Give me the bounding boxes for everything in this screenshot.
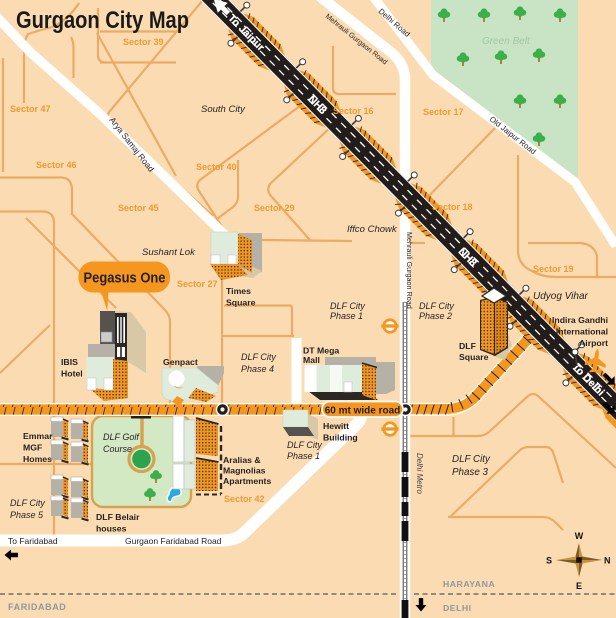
svg-text:Course: Course <box>103 444 132 454</box>
svg-text:E: E <box>576 581 582 591</box>
svg-text:Sector 29: Sector 29 <box>254 203 295 213</box>
svg-text:Genpact: Genpact <box>163 357 198 367</box>
svg-text:DLF City: DLF City <box>287 440 322 450</box>
svg-text:N: N <box>604 556 611 566</box>
svg-text:S: S <box>546 556 552 566</box>
svg-text:Iffco Chowk: Iffco Chowk <box>347 224 398 235</box>
svg-text:Apartments: Apartments <box>223 476 271 486</box>
svg-text:MGF: MGF <box>23 443 42 453</box>
svg-text:Phase 3: Phase 3 <box>452 467 489 478</box>
svg-text:Phase 4: Phase 4 <box>241 364 274 374</box>
svg-text:DELHI: DELHI <box>443 603 472 613</box>
svg-text:Mall: Mall <box>303 355 320 365</box>
svg-text:Sector 47: Sector 47 <box>10 104 51 114</box>
svg-text:Sector 17: Sector 17 <box>423 107 464 117</box>
svg-text:FARIDABAD: FARIDABAD <box>8 602 66 612</box>
svg-text:South City: South City <box>201 104 246 115</box>
svg-text:Hotel: Hotel <box>61 369 83 379</box>
svg-text:Aralias &: Aralias & <box>223 455 261 465</box>
svg-text:Sector 16: Sector 16 <box>333 106 374 116</box>
svg-text:Delhi Metro: Delhi Metro <box>415 453 424 494</box>
svg-text:Homes: Homes <box>23 454 52 464</box>
svg-text:Square: Square <box>226 298 256 308</box>
svg-text:Square: Square <box>459 352 489 362</box>
svg-text:Emmar: Emmar <box>23 431 53 441</box>
svg-text:Sector 46: Sector 46 <box>36 160 77 170</box>
svg-text:DLF City: DLF City <box>241 352 276 362</box>
svg-text:DLF City: DLF City <box>330 301 365 311</box>
svg-text:DLF Belair: DLF Belair <box>96 512 140 522</box>
svg-text:Sector 18: Sector 18 <box>432 202 473 212</box>
svg-text:IBIS: IBIS <box>61 357 78 367</box>
svg-text:Building: Building <box>323 433 358 443</box>
svg-text:To Faridabad: To Faridabad <box>8 536 58 546</box>
svg-text:International: International <box>556 327 608 337</box>
svg-text:W: W <box>575 531 584 541</box>
svg-text:DLF City: DLF City <box>419 301 454 311</box>
svg-text:Airport: Airport <box>579 338 608 348</box>
svg-text:Phase 1: Phase 1 <box>287 451 320 461</box>
svg-text:DLF: DLF <box>459 341 476 351</box>
svg-text:60 mt wide road: 60 mt wide road <box>325 406 401 417</box>
svg-text:Gurgaon City Map: Gurgaon City Map <box>16 7 189 34</box>
svg-text:Sector 45: Sector 45 <box>118 203 159 213</box>
svg-text:Udyog Vihar: Udyog Vihar <box>533 291 589 302</box>
svg-text:DT Mega: DT Mega <box>303 346 339 356</box>
svg-text:DLF City: DLF City <box>452 454 491 465</box>
svg-text:houses: houses <box>96 524 127 534</box>
svg-text:Sushant Lok: Sushant Lok <box>142 247 196 258</box>
svg-text:Phase 1: Phase 1 <box>330 311 363 321</box>
svg-text:Hewitt: Hewitt <box>323 421 349 431</box>
svg-text:DLF City: DLF City <box>10 498 45 508</box>
svg-text:Green Belt: Green Belt <box>482 36 531 47</box>
svg-text:Sector 39: Sector 39 <box>123 37 164 47</box>
svg-text:Sector 42: Sector 42 <box>224 494 265 504</box>
svg-text:HARAYANA: HARAYANA <box>443 579 495 589</box>
svg-text:Magnolias: Magnolias <box>223 466 266 476</box>
svg-text:Pegasus One: Pegasus One <box>84 270 166 287</box>
svg-text:Mehrauli Gurgaon Road: Mehrauli Gurgaon Road <box>405 232 414 309</box>
svg-text:Sector 40: Sector 40 <box>196 162 237 172</box>
svg-text:Gurgaon Faridabad Road: Gurgaon Faridabad Road <box>125 536 222 546</box>
svg-text:Times: Times <box>226 286 251 296</box>
svg-text:Sector 27: Sector 27 <box>177 279 218 289</box>
svg-text:Sector 19: Sector 19 <box>533 264 574 274</box>
svg-text:DLF Golf: DLF Golf <box>103 432 140 442</box>
svg-text:Phase 5: Phase 5 <box>10 510 44 520</box>
svg-text:Phase 2: Phase 2 <box>419 311 452 321</box>
svg-text:Indira Gandhi: Indira Gandhi <box>552 315 608 325</box>
